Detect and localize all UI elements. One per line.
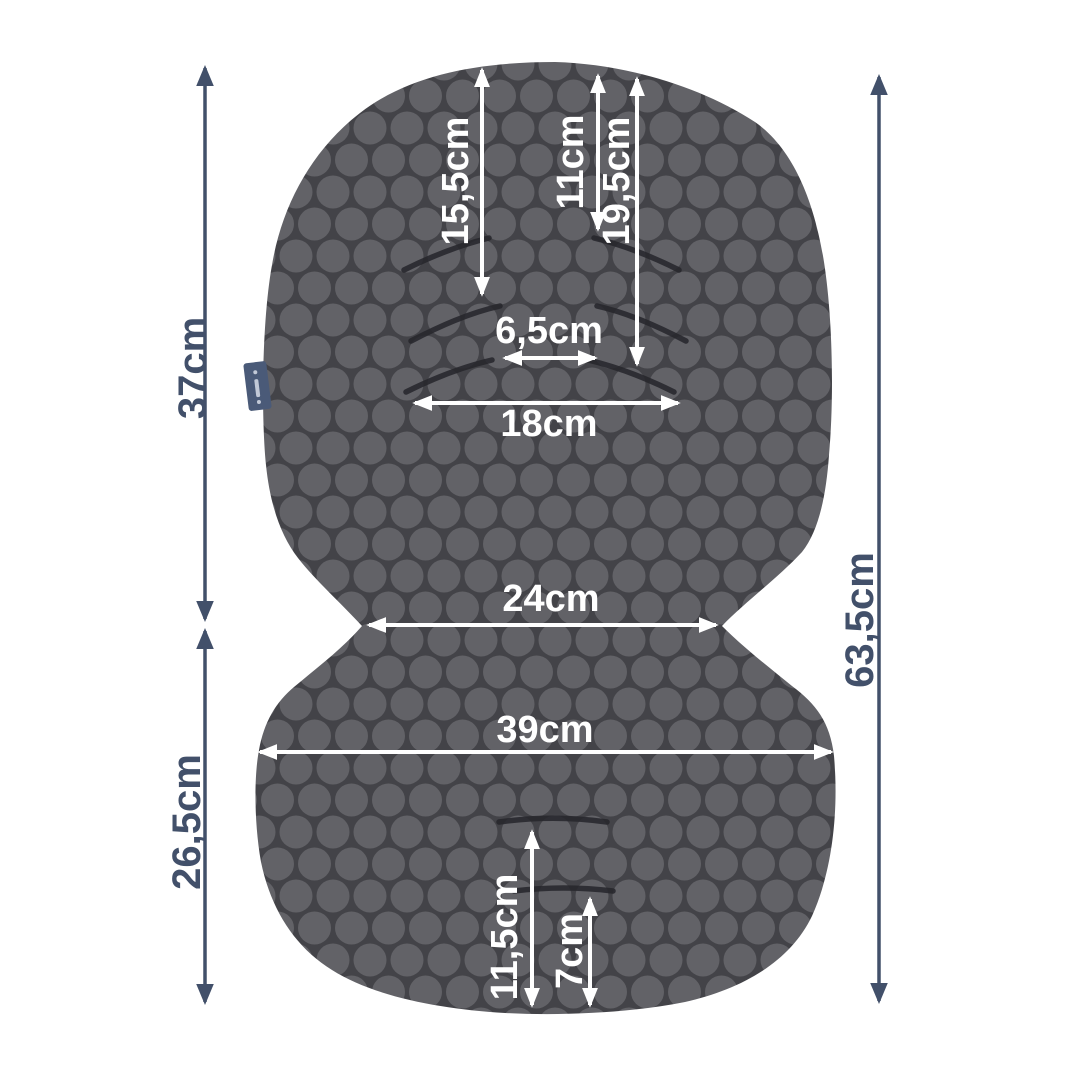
seat-pad-silhouette — [255, 62, 835, 1014]
dim-label-7cm: 7cm — [551, 913, 589, 989]
dim-label-37cm: 37cm — [173, 317, 213, 419]
dim-label-11-5cm: 11,5cm — [486, 874, 524, 1001]
diagram-graphics — [0, 0, 1080, 1080]
dim-label-11cm: 11cm — [552, 114, 590, 209]
dim-label-18cm: 18cm — [500, 405, 597, 443]
dim-label-63-5cm: 63,5cm — [840, 552, 880, 688]
dimension-diagram: 15,5cm 11cm 19,5cm 6,5cm 18cm 24cm 39cm … — [0, 0, 1080, 1080]
crotch-slit-lower — [514, 888, 613, 891]
dim-label-39cm: 39cm — [496, 711, 593, 749]
dim-label-19-5cm: 19,5cm — [598, 117, 636, 246]
dim-label-6-5cm: 6,5cm — [495, 312, 603, 350]
dim-label-15-5cm: 15,5cm — [437, 117, 475, 246]
dim-label-24cm: 24cm — [502, 580, 599, 618]
dim-label-26-5cm: 26,5cm — [167, 754, 207, 890]
